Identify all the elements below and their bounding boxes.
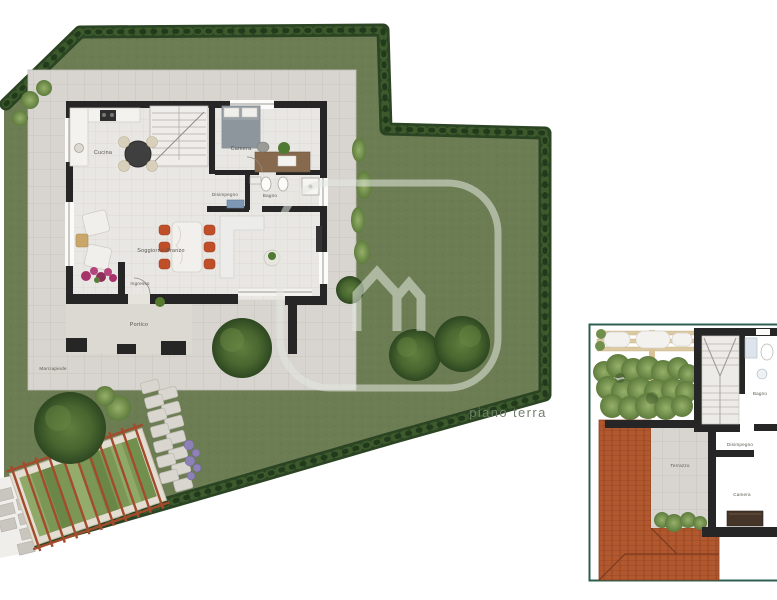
label-terrazzo: Terrazzo [670,463,689,468]
floorplan-image: Cucina Camera Disimpegno Bagno Soggiorno… [0,0,777,600]
terrace-floor [651,422,711,528]
label-camera: Camera [231,146,252,152]
house-ground-floor: Cucina Camera Disimpegno Bagno Soggiorno… [39,100,328,371]
label-ff-disimpegno: Disimpegno [727,442,754,447]
label-ff-camera: Camera [733,492,751,497]
first-floor-panel: Terrazzo Bagno Disimpegno Camera [590,325,777,581]
first-floor-dresser [727,511,763,526]
first-floor-window [756,329,770,335]
first-floor-staircase [702,336,739,424]
label-cucina: Cucina [94,150,112,156]
ground-floor-plan: Cucina Camera Disimpegno Bagno Soggiorno… [0,28,547,558]
label-soggiorno: Soggiorno-Pranzo [137,248,184,254]
plan-caption: piano terra [469,405,547,420]
floorplan-svg: Cucina Camera Disimpegno Bagno Soggiorno… [0,0,777,600]
label-portico: Portico [130,322,149,328]
label-bagno: Bagno [263,193,278,198]
label-marciapiede: Marciapiede [39,366,66,371]
staircase [150,106,208,166]
label-ff-bagno: Bagno [753,391,768,396]
label-disimpegno: Disimpegno [212,192,239,197]
label-ingresso: Ingresso [130,281,149,286]
pergola-garden [593,329,698,420]
